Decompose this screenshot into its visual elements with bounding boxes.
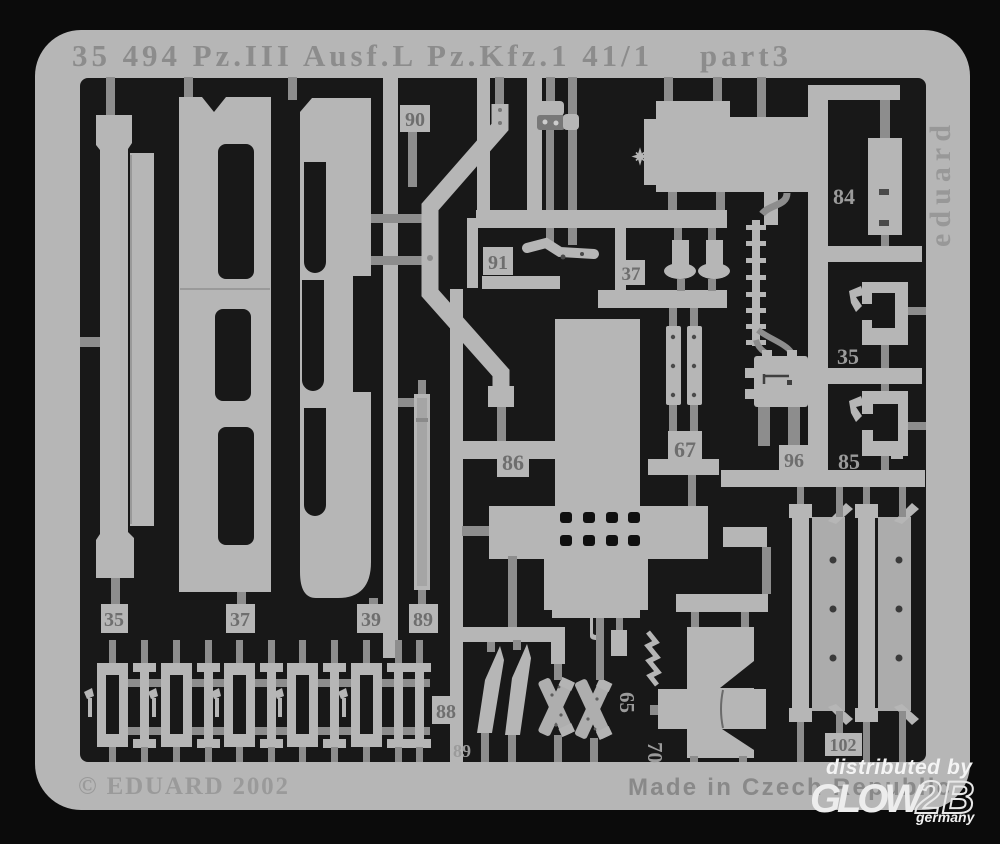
svg-text:89: 89: [453, 741, 471, 761]
svg-text:96: 96: [784, 450, 804, 472]
svg-text:37: 37: [230, 609, 250, 631]
svg-text:91: 91: [488, 252, 508, 274]
svg-text:67: 67: [674, 437, 696, 462]
svg-text:65: 65: [615, 692, 639, 713]
svg-text:70: 70: [643, 742, 667, 763]
svg-text:37: 37: [622, 264, 642, 285]
svg-text:39: 39: [361, 609, 381, 631]
svg-text:84: 84: [833, 184, 855, 209]
svg-text:GLOW: GLOW: [810, 777, 925, 821]
svg-text:88: 88: [436, 701, 456, 723]
svg-text:90: 90: [405, 109, 425, 131]
svg-text:86: 86: [502, 450, 524, 475]
svg-text:germany: germany: [915, 809, 976, 825]
svg-text:35: 35: [837, 344, 859, 369]
svg-text:89: 89: [413, 609, 433, 631]
svg-text:85: 85: [838, 449, 860, 474]
svg-text:35: 35: [104, 609, 124, 631]
svg-text:102: 102: [830, 735, 857, 755]
